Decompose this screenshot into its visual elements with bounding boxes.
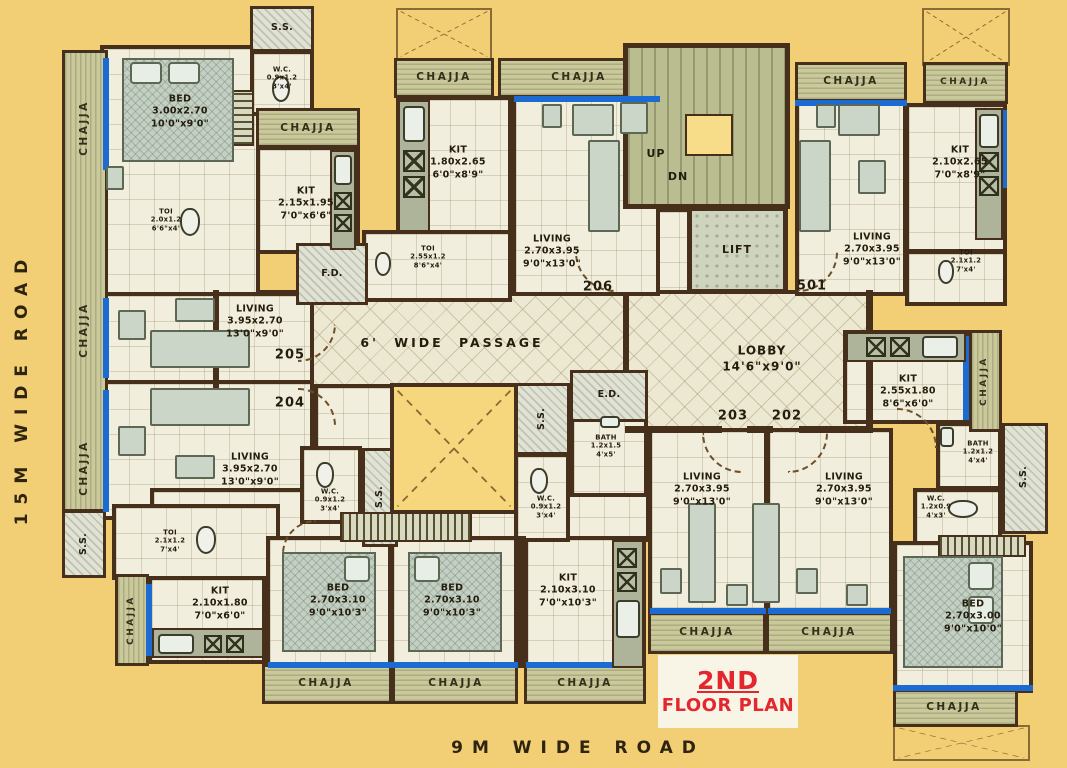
- label-wc-topleft: W.C. 0.9x1.2 3'x4': [267, 65, 298, 90]
- toilet-pan: [196, 526, 216, 554]
- passage-text: 6' WIDE PASSAGE: [360, 335, 543, 351]
- dims-ft: 6'6"x4': [151, 224, 182, 232]
- room-name: BATH: [591, 433, 622, 441]
- dims-m: 0.9x1.2: [531, 503, 562, 511]
- sofa: [150, 388, 250, 426]
- balcony-x-mark: [924, 10, 1008, 64]
- wall: [747, 426, 773, 433]
- label-toi-topleft: TOI 2.0x1.2 6'6"x4': [151, 207, 182, 232]
- room-name: W.C.: [531, 494, 562, 502]
- chajja-text: CHAJJA: [78, 302, 92, 358]
- kitchen-sink: [334, 155, 352, 185]
- room-name: LIVING: [523, 233, 581, 245]
- chajja-text: CHAJJA: [428, 677, 484, 691]
- dims-ft: 13'0"x9'0": [226, 328, 284, 340]
- label-bed-bottom-1: BED 2.70x3.10 9'0"x10'3": [309, 582, 367, 619]
- sofa: [588, 140, 620, 232]
- chair: [542, 104, 562, 128]
- fd-text: F.D.: [321, 268, 342, 280]
- chajja-text: CHAJJA: [280, 122, 336, 136]
- dims-ft: 6'0"x8'9": [430, 169, 486, 181]
- ss-text: S.S.: [536, 408, 548, 430]
- room-name: BATH: [963, 439, 994, 447]
- ss-text: S.S.: [271, 22, 293, 34]
- dims-ft: 7'0"x6'6": [278, 210, 334, 222]
- toilet-pan: [948, 500, 978, 518]
- pillow: [168, 62, 200, 84]
- dims-ft: 3'x4': [267, 82, 298, 90]
- dims-m: 0.9x1.2: [267, 74, 298, 82]
- chajja-label: CHAJJA: [416, 71, 472, 85]
- dims-ft: 10'0"x9'0": [151, 118, 209, 130]
- label-bath-202: BATH 1.2x1.2 4'x4': [963, 439, 994, 464]
- room-name: BED: [309, 582, 367, 594]
- dining-table: [838, 104, 880, 136]
- dims-ft: 7'0"x10'3": [539, 597, 597, 609]
- dims-ft: 13'0"x9'0": [221, 476, 279, 488]
- kitchen-sink: [403, 106, 425, 142]
- dims-ft: 7'x4': [951, 265, 982, 273]
- window: [650, 608, 766, 614]
- lift-label: LIFT: [722, 243, 752, 257]
- dims-ft: 3'x4': [315, 504, 346, 512]
- pillow: [130, 62, 162, 84]
- chajja-label: CHAJJA: [551, 71, 607, 85]
- room-name: KIT: [278, 185, 334, 197]
- room-name: KIT: [880, 373, 936, 385]
- label-living-206: LIVING 2.70x3.95 9'0"x13'0": [523, 233, 581, 270]
- stair-dn-label: DN: [668, 170, 688, 184]
- balcony-x-mark: [895, 727, 1028, 759]
- dims-m: 2.1x1.2: [155, 537, 186, 545]
- dims-m: 2.70x3.95: [673, 484, 731, 496]
- stove-burner: [617, 572, 637, 592]
- lobby-label: LOBBY 14'6"x9'0": [722, 343, 801, 374]
- chajja-text: CHAJJA: [679, 626, 735, 640]
- chajja-text: CHAJJA: [940, 77, 990, 89]
- dims-m: 2.15x1.95: [278, 198, 334, 210]
- stove-burner: [226, 635, 244, 653]
- dims-ft: 9'0"x10'3": [309, 607, 367, 619]
- room-name: LIVING: [226, 303, 284, 315]
- chajja-label: CHAJJA: [78, 100, 92, 156]
- room-name: LIVING: [221, 451, 279, 463]
- dims-ft: 4'x5': [591, 450, 622, 458]
- label-toi-206: TOI 2.55x1.2 8'6"x4': [410, 244, 446, 269]
- dims-m: 2.10x2.65: [932, 157, 988, 169]
- dims-m: 2.55x1.2: [410, 253, 446, 261]
- wall: [516, 536, 526, 668]
- chajja-text: CHAJJA: [979, 356, 991, 406]
- stove-burner: [403, 150, 425, 172]
- kitchen-sink: [616, 600, 640, 638]
- label-kit-501: KIT 2.10x2.65 7'0"x8'9": [932, 144, 988, 181]
- chair: [858, 160, 886, 194]
- label-living-203: LIVING 2.70x3.95 9'0"x13'0": [673, 471, 731, 508]
- ss-text: S.S.: [374, 486, 386, 508]
- label-kit-206: KIT 1.80x2.65 6'0"x8'9": [430, 144, 486, 181]
- dims-m: 1.2x0.9: [921, 503, 952, 511]
- chajja-label: CHAJJA: [940, 77, 990, 89]
- chajja-label: CHAJJA: [679, 626, 735, 640]
- chajja-text: CHAJJA: [801, 626, 857, 640]
- room-name: W.C.: [267, 65, 298, 73]
- dims-ft: 7'x4': [155, 545, 186, 553]
- dims-m: 2.55x1.80: [880, 386, 936, 398]
- lobby-name: LOBBY: [722, 343, 801, 359]
- label-kit-bottom: KIT 2.10x3.10 7'0"x10'3": [539, 572, 597, 609]
- room-living-202: [766, 428, 893, 614]
- dims-m: 1.2x1.2: [963, 448, 994, 456]
- dims-ft: 8'6"x6'0": [880, 398, 936, 410]
- table: [175, 298, 215, 322]
- dims-m: 0.9x1.2: [315, 496, 346, 504]
- window: [392, 662, 518, 668]
- room-name: BED: [944, 598, 1002, 610]
- stove-burner: [866, 337, 886, 357]
- wash-basin: [600, 416, 620, 428]
- dims-m: 2.10x1.80: [192, 598, 248, 610]
- label-kit-202: KIT 2.55x1.80 8'6"x6'0": [880, 373, 936, 410]
- room-name: BED: [151, 93, 209, 105]
- chajja-text: CHAJJA: [78, 100, 92, 156]
- road-label-left: 15M WIDE ROAD: [12, 251, 32, 526]
- dims-ft: 8'6"x4': [410, 261, 446, 269]
- unit-204-label: 204: [275, 396, 305, 413]
- chair: [726, 584, 748, 606]
- unit-206-label: 206: [583, 280, 613, 297]
- floor-plan: BED 3.00x2.70 10'0"x9'0" W.C. 0.9x1.2 3'…: [0, 0, 1067, 768]
- room-name: TOI: [155, 528, 186, 536]
- kitchen-sink: [979, 114, 999, 148]
- chair: [118, 310, 146, 340]
- label-bed-bottom-2: BED 2.70x3.10 9'0"x10'3": [423, 582, 481, 619]
- dims-ft: 9'0"x13'0": [815, 496, 873, 508]
- road-text: 15M WIDE ROAD: [12, 251, 32, 526]
- chajja-text: CHAJJA: [823, 75, 879, 89]
- open-balcony-top-right: [922, 8, 1010, 66]
- dims-ft: 7'0"x6'0": [192, 610, 248, 622]
- dining-table: [572, 104, 614, 136]
- chajja-label: CHAJJA: [126, 595, 138, 645]
- unit-number: 204: [275, 396, 305, 413]
- staircase: [623, 43, 790, 209]
- label-wc-202: W.C. 1.2x0.9 4'x3': [921, 494, 952, 519]
- dims-ft: 3'x4': [531, 511, 562, 519]
- room-name: KIT: [539, 572, 597, 584]
- dims-ft: 9'0"x10'3": [423, 607, 481, 619]
- lobby-dims: 14'6"x9'0": [722, 359, 801, 375]
- label-bed-topleft: BED 3.00x2.70 10'0"x9'0": [151, 93, 209, 130]
- passage-label: 6' WIDE PASSAGE: [360, 335, 543, 351]
- room-name: TOI: [151, 207, 182, 215]
- stove-burner: [403, 176, 425, 198]
- chajja-label: CHAJJA: [78, 302, 92, 358]
- dims-ft: 9'0"x13'0": [843, 256, 901, 268]
- label-bath-mid: BATH 1.2x1.5 4'x5': [591, 433, 622, 458]
- window: [103, 298, 109, 378]
- room-name: LIVING: [843, 231, 901, 243]
- dims-m: 2.70x3.10: [309, 595, 367, 607]
- room-name: TOI: [951, 248, 982, 256]
- chajja-label: CHAJJA: [428, 677, 484, 691]
- label-living-202: LIVING 2.70x3.95 9'0"x13'0": [815, 471, 873, 508]
- toilet-pan: [530, 468, 548, 494]
- unit-202-label: 202: [772, 409, 802, 426]
- ss-label: S.S.: [536, 408, 548, 430]
- window: [268, 662, 392, 668]
- wall: [799, 426, 872, 433]
- chajja-label: CHAJJA: [78, 440, 92, 496]
- unit-number: 202: [772, 409, 802, 426]
- chajja-text: CHAJJA: [926, 701, 982, 715]
- chair: [660, 568, 682, 594]
- chajja-label: CHAJJA: [979, 356, 991, 406]
- open-duct-courtyard: [390, 383, 518, 514]
- unit-501-label: 501: [797, 279, 827, 296]
- room-name: KIT: [430, 144, 486, 156]
- stove-burner: [890, 337, 910, 357]
- stair-landing: [685, 114, 733, 156]
- unit-number: 205: [275, 348, 305, 365]
- chair: [816, 104, 836, 128]
- chajja-text: CHAJJA: [416, 71, 472, 85]
- dims-ft: 7'0"x8'9": [932, 169, 988, 181]
- plan-title-line2: FLOOR PLAN: [662, 695, 795, 716]
- chajja-label: CHAJJA: [823, 75, 879, 89]
- ss-label: S.S.: [374, 486, 386, 508]
- pillow: [344, 556, 370, 582]
- label-toi-bottomleft: TOI 2.1x1.2 7'x4': [155, 528, 186, 553]
- room-name: TOI: [410, 244, 446, 252]
- plan-title-box: 2ND FLOOR PLAN: [658, 655, 798, 728]
- dims-m: 2.70x3.10: [423, 595, 481, 607]
- label-living-204: LIVING 3.95x2.70 13'0"x9'0": [221, 451, 279, 488]
- dims-m: 1.2x1.5: [591, 442, 622, 450]
- dims-m: 2.70x3.95: [843, 244, 901, 256]
- dims-ft: 9'0"x13'0": [673, 496, 731, 508]
- dims-m: 2.70x3.00: [944, 611, 1002, 623]
- toilet-pan: [375, 252, 391, 276]
- stove-burner: [334, 214, 352, 232]
- table: [175, 455, 215, 479]
- label-kit-topleft: KIT 2.15x1.95 7'0"x6'6": [278, 185, 334, 222]
- wall: [625, 426, 722, 433]
- label-wc-mid-right: W.C. 0.9x1.2 3'x4': [531, 494, 562, 519]
- ss-label: S.S.: [271, 22, 293, 34]
- chajja-label: CHAJJA: [801, 626, 857, 640]
- ss-text: S.S.: [1018, 466, 1030, 488]
- chair: [118, 426, 146, 456]
- label-kit-bottomleft: KIT 2.10x1.80 7'0"x6'0": [192, 585, 248, 622]
- lift-text: LIFT: [722, 243, 752, 257]
- dims-m: 3.00x2.70: [151, 106, 209, 118]
- label-living-501: LIVING 2.70x3.95 9'0"x13'0": [843, 231, 901, 268]
- room-name: KIT: [192, 585, 248, 597]
- room-name: W.C.: [921, 494, 952, 502]
- railing-courtyard: [340, 512, 472, 542]
- road-label-bottom: 9M WIDE ROAD: [451, 738, 705, 758]
- unit-205-label: 205: [275, 348, 305, 365]
- plan-title-line1: 2ND: [697, 667, 759, 695]
- unit-number: 206: [583, 280, 613, 297]
- dims-m: 3.95x2.70: [226, 316, 284, 328]
- room-name: KIT: [932, 144, 988, 156]
- room-name: LIVING: [815, 471, 873, 483]
- wash-basin: [940, 427, 954, 447]
- fd-label: F.D.: [321, 268, 342, 280]
- chair: [846, 584, 868, 606]
- sofa: [799, 140, 831, 232]
- balcony-x-mark: [398, 10, 490, 58]
- room-name: LIVING: [673, 471, 731, 483]
- dims-m: 3.95x2.70: [221, 464, 279, 476]
- chair: [796, 568, 818, 594]
- dims-m: 1.80x2.65: [430, 157, 486, 169]
- room-name: W.C.: [315, 487, 346, 495]
- chajja-label: CHAJJA: [557, 677, 613, 691]
- railing-202: [938, 535, 1026, 557]
- kitchen-sink: [158, 634, 194, 654]
- stove-burner: [204, 635, 222, 653]
- label-wc-mid-left: W.C. 0.9x1.2 3'x4': [315, 487, 346, 512]
- stove-burner: [617, 548, 637, 568]
- ed-text: E.D.: [598, 389, 621, 401]
- cupboard: [688, 503, 716, 603]
- chajja-label: CHAJJA: [280, 122, 336, 136]
- duct-x-mark: [394, 387, 514, 510]
- chajja-text: CHAJJA: [551, 71, 607, 85]
- dims-m: 2.70x3.95: [523, 246, 581, 258]
- dims-ft: 4'x3': [921, 511, 952, 519]
- stove-burner: [334, 192, 352, 210]
- window: [893, 685, 1033, 691]
- dims-m: 2.1x1.2: [951, 257, 982, 265]
- unit-number: 501: [797, 279, 827, 296]
- dims-m: 2.0x1.2: [151, 216, 182, 224]
- unit-203-label: 203: [718, 409, 748, 426]
- dims-ft: 9'0"x13'0": [523, 258, 581, 270]
- window: [103, 390, 109, 512]
- ss-label: S.S.: [78, 533, 90, 555]
- open-balcony-bottom-right: [893, 725, 1030, 761]
- ss-text: S.S.: [78, 533, 90, 555]
- dn-text: DN: [668, 170, 688, 184]
- kitchen-sink: [922, 336, 958, 358]
- side-table: [106, 166, 124, 190]
- chajja-text: CHAJJA: [557, 677, 613, 691]
- open-balcony-top-center: [396, 8, 492, 60]
- unit-number: 203: [718, 409, 748, 426]
- chajja-text: CHAJJA: [78, 440, 92, 496]
- chajja-label: CHAJJA: [298, 677, 354, 691]
- room-name: BED: [423, 582, 481, 594]
- label-toi-501: TOI 2.1x1.2 7'x4': [951, 248, 982, 273]
- label-bed-202: BED 2.70x3.00 9'0"x10'0": [944, 598, 1002, 635]
- pillow: [968, 562, 994, 590]
- dims-ft: 9'0"x10'0": [944, 623, 1002, 635]
- ss-label: S.S.: [1018, 466, 1030, 488]
- road-text: 9M WIDE ROAD: [451, 738, 705, 758]
- chajja-text: CHAJJA: [126, 595, 138, 645]
- dims-m: 2.10x3.10: [539, 585, 597, 597]
- chair: [620, 102, 648, 134]
- toilet-pan: [180, 208, 200, 236]
- chajja-label: CHAJJA: [926, 701, 982, 715]
- stair-up-label: UP: [647, 147, 666, 161]
- window: [768, 608, 891, 614]
- dims-ft: 4'x4': [963, 456, 994, 464]
- up-text: UP: [647, 147, 666, 161]
- label-living-205: LIVING 3.95x2.70 13'0"x9'0": [226, 303, 284, 340]
- cupboard: [752, 503, 780, 603]
- toilet-pan: [316, 462, 334, 488]
- chajja-text: CHAJJA: [298, 677, 354, 691]
- pillow: [414, 556, 440, 582]
- window: [103, 58, 109, 170]
- ed-label: E.D.: [598, 389, 621, 401]
- dims-m: 2.70x3.95: [815, 484, 873, 496]
